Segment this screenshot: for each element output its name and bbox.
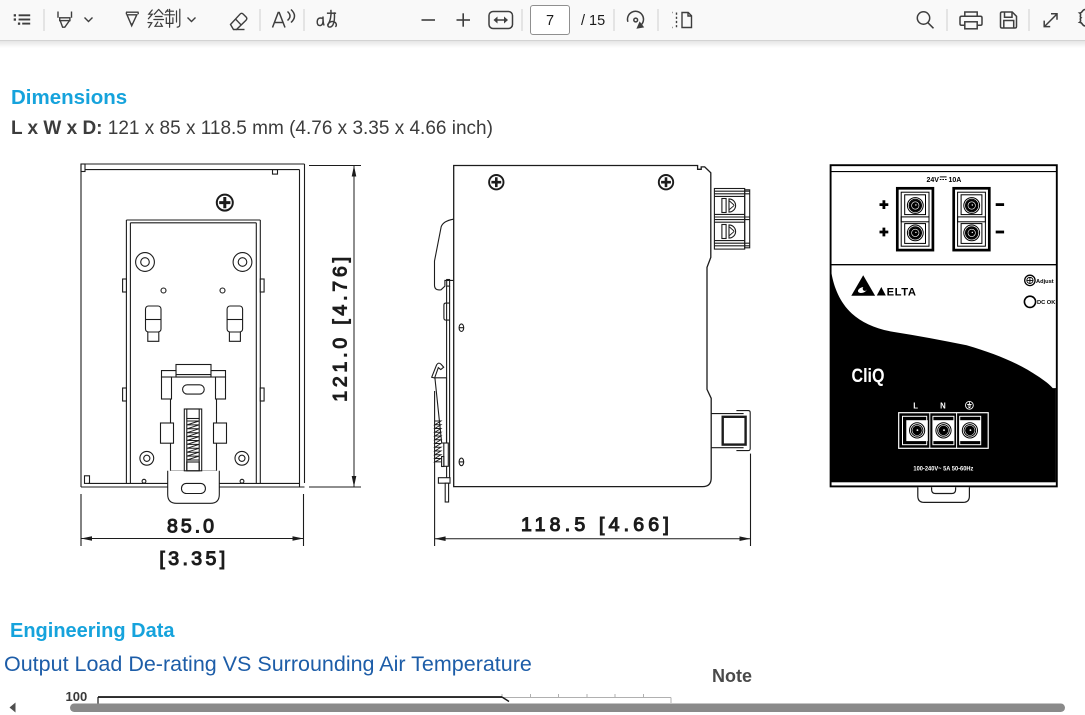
svg-text:100-240V~ 5A 50-60Hz: 100-240V~ 5A 50-60Hz bbox=[913, 466, 974, 473]
svg-text:118.5 [4.66]: 118.5 [4.66] bbox=[521, 514, 673, 536]
svg-text:Adjust: Adjust bbox=[1036, 279, 1054, 285]
svg-text:7: 7 bbox=[546, 13, 554, 29]
svg-text:/ 15: / 15 bbox=[581, 13, 605, 29]
svg-text:N: N bbox=[940, 402, 946, 411]
svg-text:10A: 10A bbox=[949, 177, 962, 184]
svg-text:CliQ: CliQ bbox=[852, 365, 885, 387]
svg-text:85.0: 85.0 bbox=[167, 516, 217, 538]
svg-text:L: L bbox=[913, 402, 918, 411]
svg-text:121.0 [4.76]: 121.0 [4.76] bbox=[330, 253, 352, 402]
svg-text:DC OK: DC OK bbox=[1037, 300, 1056, 306]
svg-text:ELTA: ELTA bbox=[887, 287, 917, 299]
svg-text:[3.35]: [3.35] bbox=[159, 548, 228, 570]
svg-text:24V: 24V bbox=[927, 177, 940, 184]
